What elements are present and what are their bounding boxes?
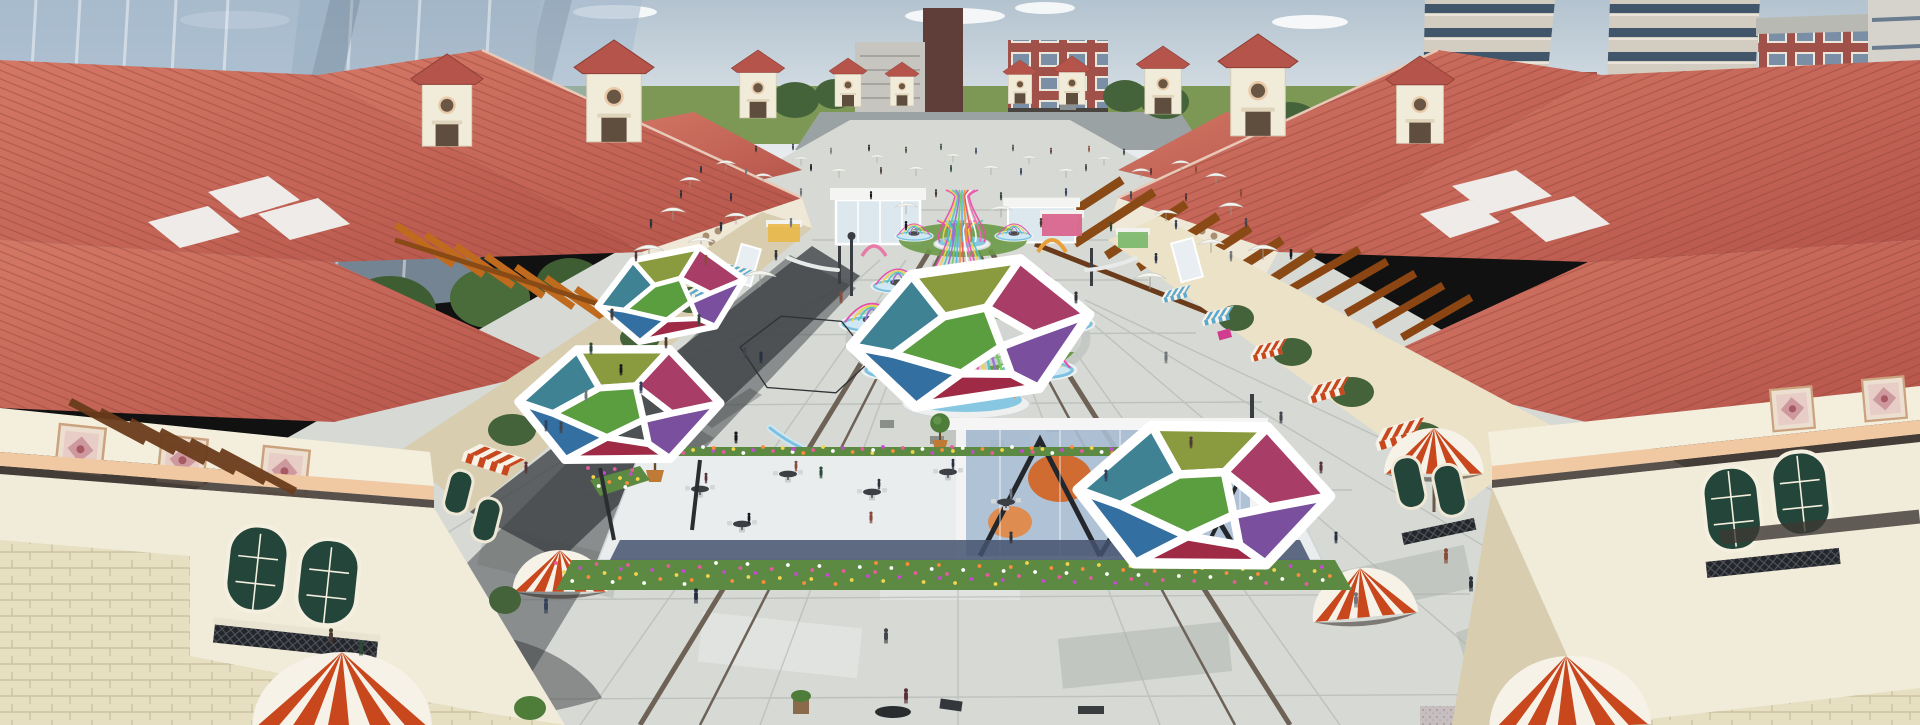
flower [771,449,775,453]
flower [981,447,985,451]
flower [613,467,617,471]
flower [730,579,734,583]
flower [1145,582,1149,586]
flower [1192,579,1196,583]
flower [961,568,965,572]
flower [871,448,875,452]
flower [623,485,627,489]
flower [818,564,822,568]
flower [578,566,582,570]
flower [1070,445,1074,449]
flower [930,451,934,455]
flower [1313,569,1317,573]
flower [951,449,955,453]
flower [945,572,949,576]
flower [1328,574,1332,578]
flower [1289,564,1293,568]
flower [712,446,716,450]
flower [642,581,646,585]
flower [953,581,957,585]
flower [1058,575,1062,579]
flower [889,566,893,570]
flower [747,575,751,579]
flower [1010,445,1014,449]
flower [770,567,774,571]
flower [971,450,975,454]
flower [841,446,845,450]
flower [1110,447,1114,451]
flower [901,446,905,450]
flower [1041,447,1045,451]
flower [810,568,814,572]
flower [866,574,870,578]
flower [636,477,640,481]
flower [792,447,796,451]
flower [611,580,615,584]
flower [1097,563,1101,567]
flower [658,577,662,581]
flower [706,574,710,578]
flower [1009,565,1013,569]
flower [1161,578,1165,582]
flower [1080,449,1084,453]
flower [1321,578,1325,582]
flower [821,445,825,449]
flower [625,481,629,485]
flower [834,582,838,586]
flower [801,451,805,455]
flower [881,445,885,449]
flower [781,446,785,450]
flower [881,579,885,583]
flower [1041,579,1045,583]
flower [851,450,855,454]
flower [1020,449,1024,453]
flower [809,577,813,581]
flower [634,572,638,576]
flower [1249,576,1253,580]
flower [1233,580,1237,584]
flower [850,578,854,582]
flower [683,582,687,586]
rendering-viewport [0,0,1920,725]
flower [873,570,877,574]
flower [961,446,965,450]
flower [714,561,718,565]
flower [629,472,633,476]
flower [586,466,590,470]
flower [891,449,895,453]
flower [794,572,798,576]
flower [701,445,705,449]
flower [1000,448,1004,452]
flower [761,445,765,449]
flower [1320,565,1324,569]
flower [618,576,622,580]
flower [1073,580,1077,584]
flower [1002,569,1006,573]
flower [938,576,942,580]
flower [1031,450,1035,454]
flower [1065,571,1069,575]
flower [898,575,902,579]
flower [1209,575,1213,579]
flower [831,449,835,453]
flower [1089,576,1093,580]
flower [1105,572,1109,576]
flower [1033,570,1037,574]
flower [990,451,994,455]
flower [570,579,574,583]
flower [1297,573,1301,577]
flower [691,448,695,452]
flower [861,447,865,451]
flower [626,563,630,567]
flower [978,564,982,568]
flower [762,580,766,584]
flower [950,445,954,449]
flower [930,567,934,571]
flower [603,571,607,575]
flower [914,571,918,575]
flower [746,562,750,566]
flower [698,565,702,569]
flower [618,476,622,480]
flower [562,570,566,574]
flower [874,561,878,565]
flower [722,570,726,574]
flower [1129,577,1133,581]
flower [986,573,990,577]
flower [607,480,611,484]
flower [1050,451,1054,455]
flower [1280,577,1284,581]
flower [1081,567,1085,571]
flower [1090,446,1094,450]
flower [754,571,758,575]
flower [1066,562,1070,566]
flower [937,563,941,567]
flower [675,573,679,577]
flower [1060,448,1064,452]
flower [650,568,654,572]
flower [921,447,925,451]
flower [969,577,973,581]
flower [667,564,671,568]
flower [1153,569,1157,573]
flower [1256,572,1260,576]
flower [751,448,755,452]
flower [802,581,806,585]
flower [1225,571,1229,575]
flower [940,448,944,452]
flower [778,576,782,580]
flower [826,573,830,577]
flower [591,475,595,479]
flower [1264,581,1268,585]
stone-base [0,540,190,725]
flower [741,451,745,455]
flower [722,450,726,454]
flower [1025,561,1029,565]
flower [554,561,558,565]
flower [682,569,686,573]
flower [811,448,815,452]
flower [1121,568,1125,572]
plaza-rendering [0,0,1920,725]
flower [922,580,926,584]
flower [587,575,591,579]
flower [1193,570,1197,574]
flower [1017,574,1021,578]
flower [630,468,634,472]
flower [690,578,694,582]
flower [738,566,742,570]
flower [1137,573,1141,577]
flower [842,569,846,573]
flower [1272,568,1276,572]
flower [906,562,910,566]
flower [732,447,736,451]
flower [595,562,599,566]
flower [858,565,862,569]
flower [1305,582,1309,586]
flower [911,450,915,454]
flower [619,567,623,571]
flower [786,563,790,567]
flower [1113,581,1117,585]
flower [1001,578,1005,582]
flower [1049,566,1053,570]
flower [1100,450,1104,454]
flower [1177,574,1181,578]
flower [597,484,601,488]
flower [994,582,998,586]
flower [1030,446,1034,450]
